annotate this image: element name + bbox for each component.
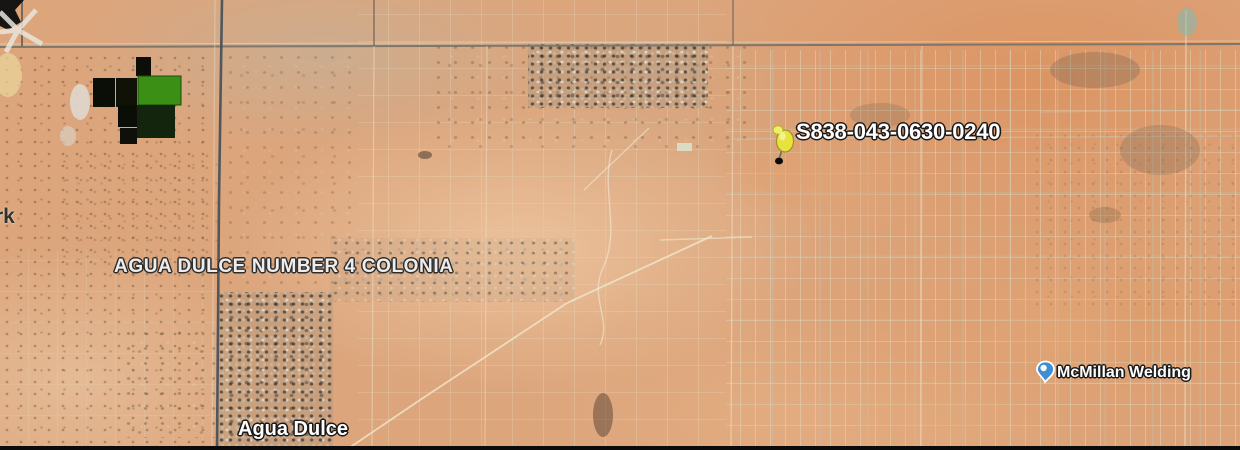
- satellite-map-canvas[interactable]: S838-043-0630-0240 AGUA DULCE NUMBER 4 C…: [0, 0, 1240, 450]
- farm-fields: [60, 57, 181, 146]
- settlement-patch-west: [120, 326, 217, 438]
- town-label: Agua Dulce: [238, 418, 348, 441]
- colonia-label: AGUA DULCE NUMBER 4 COLONIA: [114, 256, 454, 278]
- scattered-structures-north: [430, 40, 750, 150]
- corner-terrain-features: [0, 0, 42, 97]
- subdivision-grid-east: [726, 50, 1240, 446]
- edge-partial-label: rk: [0, 205, 15, 229]
- subdivision-grid-center: [358, 0, 726, 446]
- blue-place-marker-icon[interactable]: [1035, 360, 1056, 384]
- imagery-edge-bar: [0, 446, 1240, 450]
- scattered-structures: [222, 50, 362, 290]
- business-label[interactable]: McMillan Welding: [1057, 364, 1191, 382]
- subdivision-grid-southwest: [0, 250, 222, 446]
- shrub-texture: [60, 150, 220, 270]
- shrub-texture-east: [1030, 130, 1240, 310]
- shrub-texture-west: [0, 52, 212, 446]
- settlement-cluster-north: [528, 44, 708, 108]
- parcel-pin-label[interactable]: S838-043-0630-0240: [796, 119, 1000, 145]
